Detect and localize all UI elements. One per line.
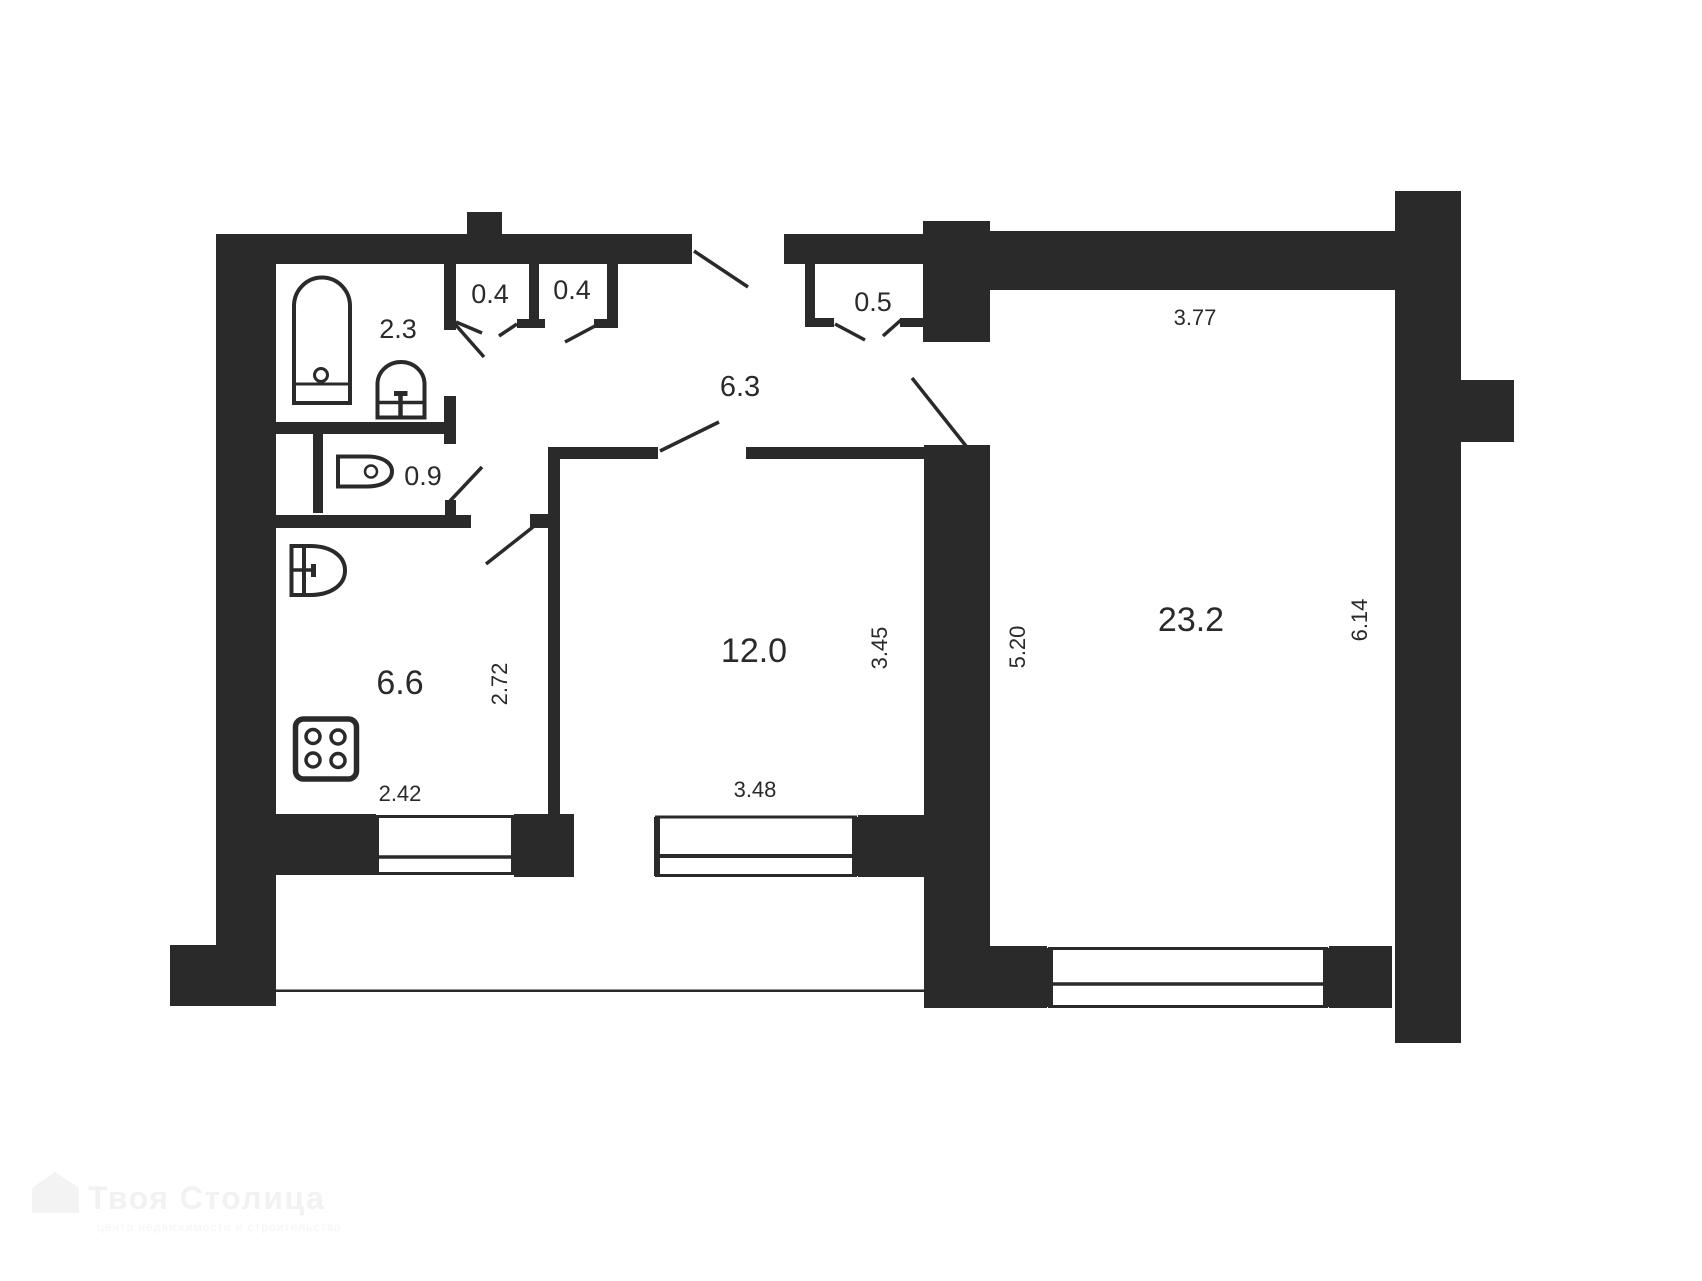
svg-text:0.4: 0.4 — [553, 275, 591, 305]
svg-text:центр недвижимости и строитель: центр недвижимости и строительства — [97, 1220, 342, 1234]
svg-text:Твоя Столица: Твоя Столица — [88, 1180, 325, 1216]
svg-text:6.14: 6.14 — [1347, 599, 1372, 642]
svg-text:3.45: 3.45 — [867, 627, 892, 670]
svg-text:2.42: 2.42 — [379, 781, 422, 806]
svg-text:0.5: 0.5 — [854, 287, 892, 317]
svg-text:12.0: 12.0 — [721, 632, 787, 670]
svg-text:6.6: 6.6 — [376, 664, 423, 702]
svg-text:2.3: 2.3 — [379, 314, 417, 344]
svg-text:3.77: 3.77 — [1174, 305, 1217, 330]
svg-text:2.72: 2.72 — [487, 663, 512, 706]
svg-text:23.2: 23.2 — [1158, 601, 1224, 639]
svg-text:5.20: 5.20 — [1005, 626, 1030, 669]
svg-text:0.9: 0.9 — [404, 461, 442, 491]
svg-text:0.4: 0.4 — [471, 279, 509, 309]
svg-text:6.3: 6.3 — [720, 371, 760, 403]
svg-text:3.48: 3.48 — [734, 777, 777, 802]
